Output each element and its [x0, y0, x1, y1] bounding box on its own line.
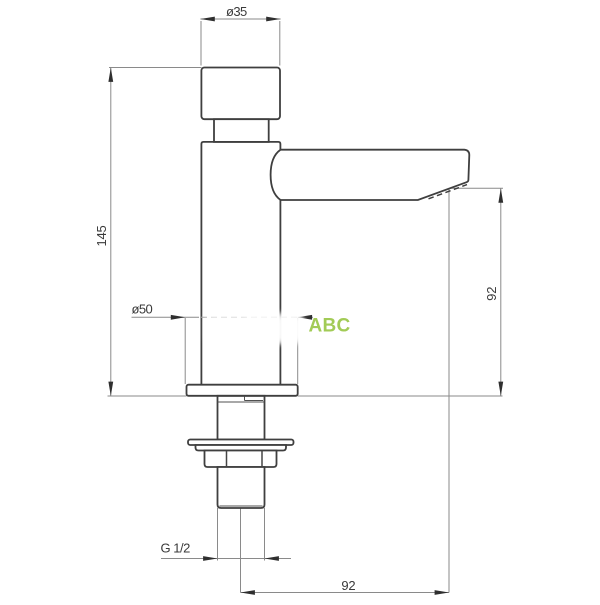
svg-text:G 1/2: G 1/2: [161, 541, 191, 556]
svg-text:ø35: ø35: [226, 4, 247, 19]
svg-text:92: 92: [341, 578, 355, 593]
svg-text:145: 145: [94, 225, 109, 246]
svg-text:92: 92: [484, 287, 499, 301]
svg-text:ABC: ABC: [309, 316, 351, 337]
svg-text:ø50: ø50: [131, 301, 152, 316]
